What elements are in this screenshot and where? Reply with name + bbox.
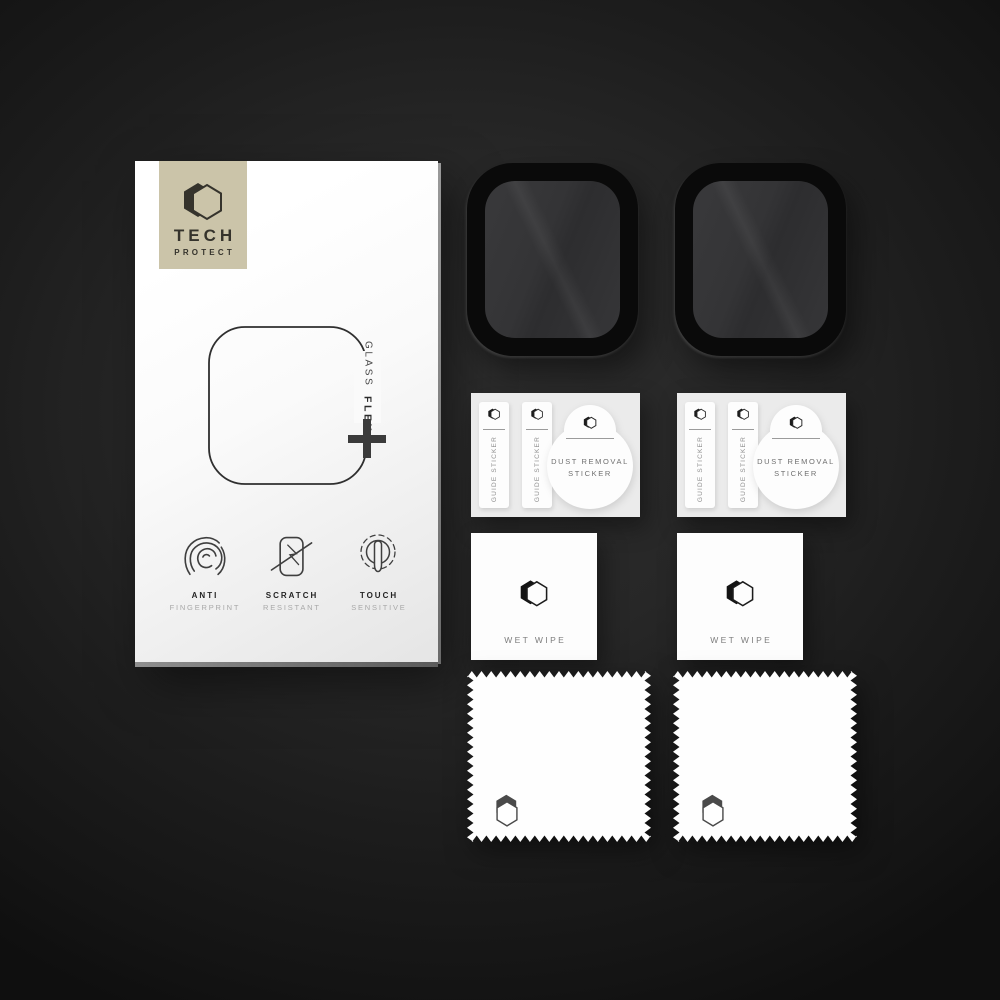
- protector-screen: [485, 181, 620, 338]
- hexagon-logo-icon: [531, 408, 544, 420]
- glass-word: GLASS: [363, 341, 374, 387]
- watch-shape-outline: [208, 326, 367, 485]
- guide-sticker-label: GUIDE STICKER: [534, 436, 541, 502]
- feature-list: ANTI FINGERPRINT SCRATCH RESISTANT TOU: [161, 531, 421, 612]
- feature-title: SCRATCH: [264, 591, 319, 600]
- hexagon-logo-icon: [697, 794, 729, 828]
- fingerprint-icon: [178, 531, 230, 583]
- brand-subname: PROTECT: [171, 248, 235, 257]
- guide-sticker-label: GUIDE STICKER: [491, 436, 498, 502]
- wet-wipe-label: WET WIPE: [471, 635, 597, 645]
- brand-panel: TECH PROTECT: [159, 161, 247, 269]
- feature-title: ANTI: [190, 591, 219, 600]
- hexagon-logo-icon: [491, 794, 523, 828]
- dust-removal-sticker: DUST REMOVAL STICKER: [749, 400, 843, 510]
- guide-sticker: GUIDE STICKER: [685, 402, 715, 508]
- guide-sticker: GUIDE STICKER: [479, 402, 509, 508]
- hexagon-logo-icon: [737, 408, 750, 420]
- touch-icon: [354, 531, 402, 583]
- guide-sticker-label: GUIDE STICKER: [740, 436, 747, 502]
- techprotect-hexagon-logo-icon: [182, 181, 224, 221]
- brand-name: TECH: [170, 226, 236, 246]
- microfiber-cloth: [467, 671, 651, 842]
- divider: [566, 438, 614, 439]
- dust-removal-label: DUST REMOVAL STICKER: [548, 456, 632, 480]
- cloth-surface: [467, 671, 651, 842]
- dust-removal-sticker: DUST REMOVAL STICKER: [543, 400, 637, 510]
- hexagon-logo-icon: [583, 416, 597, 429]
- feature-subtitle: SENSITIVE: [349, 603, 406, 612]
- feature-subtitle: RESISTANT: [261, 603, 321, 612]
- feature-title: TOUCH: [358, 591, 398, 600]
- dust-removal-label: DUST REMOVAL STICKER: [754, 456, 838, 480]
- watch-glass-protector: [675, 163, 846, 356]
- protector-screen: [693, 181, 828, 338]
- wet-wipe-sachet: WET WIPE: [677, 533, 803, 660]
- feature-scratch-resistant: SCRATCH RESISTANT: [248, 531, 334, 612]
- microfiber-cloth: [673, 671, 857, 842]
- hexagon-logo-icon: [694, 408, 707, 420]
- sticker-sheet: GUIDE STICKER GUIDE STICKER DUST REMOVAL…: [677, 393, 846, 517]
- divider: [689, 429, 711, 430]
- hexagon-logo-icon: [488, 408, 501, 420]
- wet-wipe-label: WET WIPE: [677, 635, 803, 645]
- divider: [772, 438, 820, 439]
- hexagon-logo-icon: [519, 579, 549, 607]
- sticker-sheet: GUIDE STICKER GUIDE STICKER DUST REMOVAL…: [471, 393, 640, 517]
- wet-wipe-sachet: WET WIPE: [471, 533, 597, 660]
- watch-glass-protector: [467, 163, 638, 356]
- feature-anti-fingerprint: ANTI FINGERPRINT: [161, 531, 247, 612]
- product-photo-stage: TECH PROTECT GLASSFLEX ANTI FI: [0, 0, 1000, 1000]
- feature-touch-sensitive: TOUCH SENSITIVE: [335, 531, 421, 612]
- feature-subtitle: FINGERPRINT: [168, 603, 240, 612]
- hexagon-logo-icon: [789, 416, 803, 429]
- guide-sticker-label: GUIDE STICKER: [697, 436, 704, 502]
- plus-icon: [348, 419, 386, 458]
- retail-box: TECH PROTECT GLASSFLEX ANTI FI: [135, 161, 438, 662]
- divider: [483, 429, 505, 430]
- scratch-icon: [265, 531, 317, 583]
- glass-flex-label: GLASSFLEX: [354, 351, 381, 423]
- cloth-surface: [673, 671, 857, 842]
- hexagon-logo-icon: [725, 579, 755, 607]
